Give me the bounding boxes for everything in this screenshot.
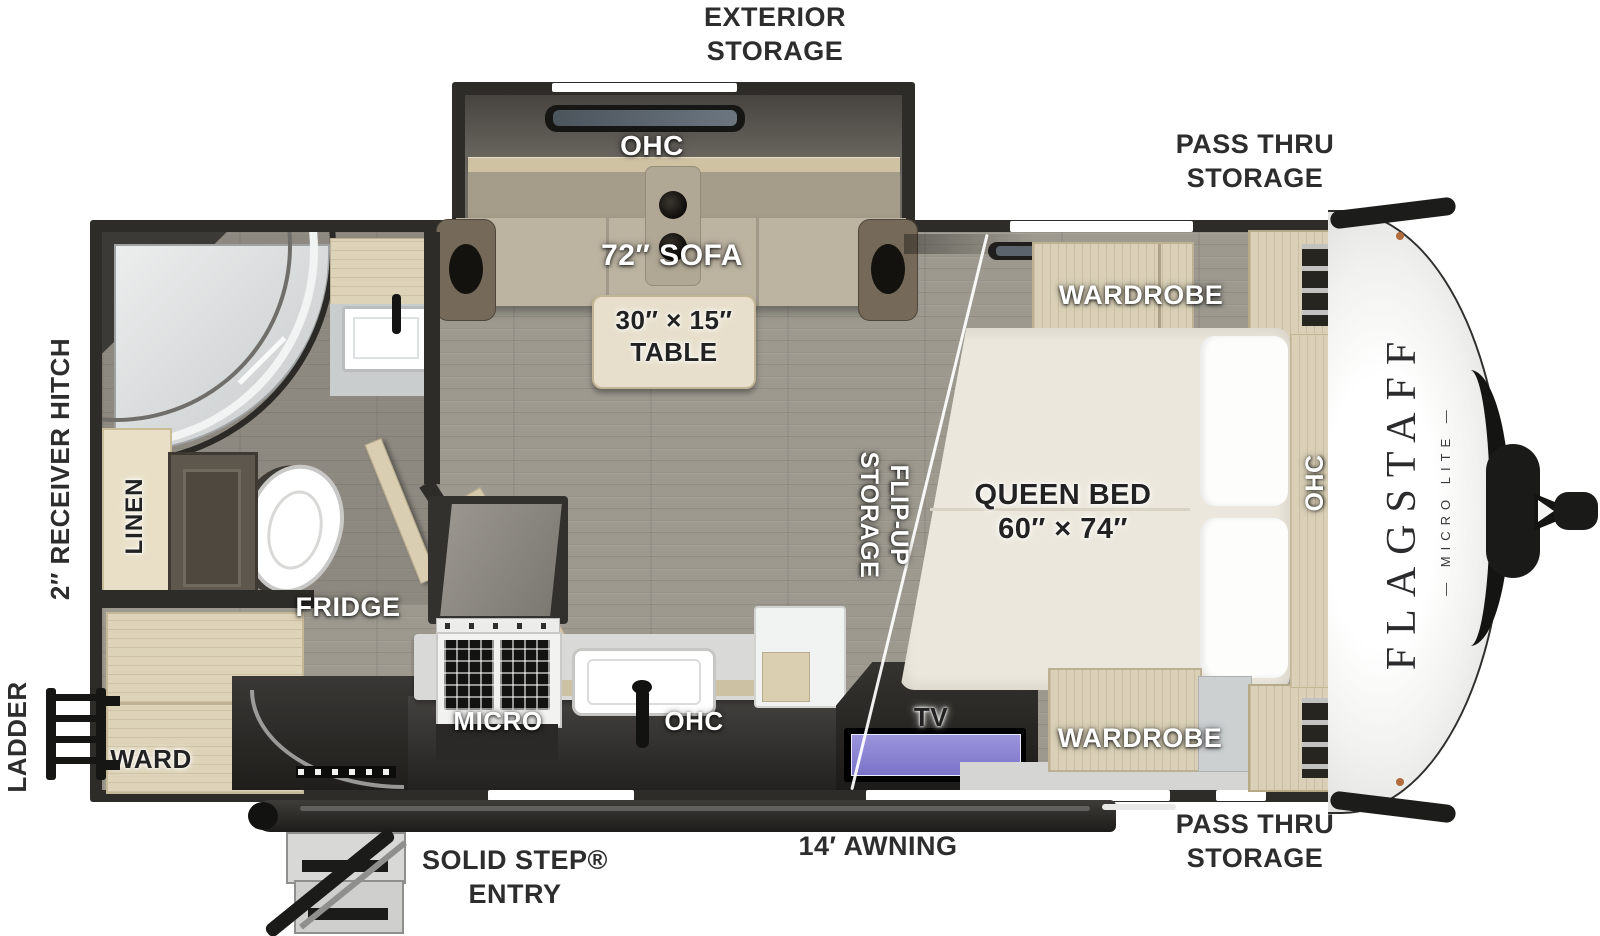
kitchen-ohc-label: OHC	[650, 704, 738, 738]
marker-light-icon	[1396, 778, 1404, 786]
kitchen-faucet-icon	[636, 688, 649, 748]
sofa-ohc-label: OHC	[610, 129, 694, 163]
exterior-storage-line2: STORAGE	[640, 34, 910, 68]
ladder-rungs	[54, 694, 98, 778]
stove-knobs	[445, 623, 551, 629]
pass-thru-top-line2: STORAGE	[1133, 161, 1377, 195]
tv-label: TV	[900, 700, 962, 734]
micro-label: MICRO	[438, 704, 558, 738]
kitchen-faucet-head	[632, 680, 652, 694]
pass-thru-bottom-label: PASS THRU STORAGE	[1133, 807, 1377, 875]
fridge	[428, 496, 568, 624]
awning-label: 14′ AWNING	[768, 829, 988, 863]
bath-dresser-panel	[183, 469, 241, 587]
entry-label-line2: ENTRY	[385, 877, 645, 911]
flip-up-wood-box	[762, 652, 810, 702]
pass-thru-top-label: PASS THRU STORAGE	[1133, 127, 1377, 195]
ladder-mount	[104, 696, 120, 706]
entry-step-strip	[296, 766, 396, 778]
dinette-table: 30″ × 15″ TABLE	[592, 295, 756, 389]
ladder-icon	[44, 686, 124, 782]
fridge-face	[440, 504, 562, 616]
fridge-label: FRIDGE	[288, 590, 408, 624]
cupholder-icon	[659, 191, 687, 219]
queen-bed-size-label: 60″ × 74″	[936, 512, 1190, 546]
stove-grate-right	[500, 640, 550, 710]
armrest-cup-icon	[449, 244, 483, 294]
wardrobe-bottom-cabinet	[1048, 668, 1202, 772]
receiver-hitch-label: 2″ RECEIVER HITCH	[43, 284, 77, 654]
flip-up-label-line2: STORAGE	[854, 425, 884, 605]
linen-label: LINEN	[118, 441, 152, 591]
bath-dresser	[168, 452, 258, 606]
table-label: TABLE	[594, 335, 754, 369]
pass-thru-top-line1: PASS THRU	[1133, 127, 1377, 161]
entry-label-line1: SOLID STEP®	[385, 843, 645, 877]
entry-step-dots	[298, 769, 394, 775]
armrest-cup-icon	[871, 244, 905, 294]
awning-bar-white-dash	[1102, 804, 1176, 810]
bath-sink-basin	[353, 317, 419, 359]
queen-bed-label: QUEEN BED	[928, 478, 1198, 512]
ladder-mount	[104, 760, 120, 770]
vanity-cabinet	[330, 238, 438, 306]
brand-logo: FLAGSTAFF	[1376, 285, 1428, 715]
awning-bar-endcap	[248, 802, 278, 830]
slideout-window	[552, 83, 737, 92]
slideout-vent	[545, 105, 745, 132]
bedroom-top-window	[1010, 221, 1193, 232]
ladder-label: LADDER	[0, 652, 34, 822]
brand-sub-logo: — MICRO LITE —	[1436, 360, 1456, 640]
pillow	[1200, 518, 1288, 678]
bathroom-bottom-wall	[102, 590, 314, 608]
propane-cover	[1486, 444, 1540, 578]
awning-bar	[254, 800, 1116, 832]
stove	[436, 618, 558, 760]
wardrobe-top-label: WARDROBE	[1012, 278, 1270, 312]
pass-thru-bottom-line2: STORAGE	[1133, 841, 1377, 875]
exterior-storage-line1: EXTERIOR	[640, 0, 910, 34]
bathroom-right-wall	[424, 232, 440, 484]
bath-sink	[342, 306, 432, 372]
marker-light-icon	[1396, 232, 1404, 240]
table-size-label: 30″ × 15″	[594, 305, 754, 335]
flip-up-label: FLIP-UP STORAGE	[854, 425, 914, 605]
pillow	[1200, 336, 1288, 506]
slideout-vent-glass	[553, 110, 737, 126]
awning-bar-highlight	[300, 806, 1090, 811]
flip-up-panel	[754, 606, 846, 708]
exterior-storage-label: EXTERIOR STORAGE	[640, 0, 910, 68]
flip-up-label-line1: FLIP-UP	[884, 425, 914, 605]
sofa-label: 72″ SOFA	[558, 239, 786, 273]
stove-grate-left	[444, 640, 494, 710]
entry-label: SOLID STEP® ENTRY	[385, 843, 645, 911]
wardrobe-bottom-label: WARDROBE	[1019, 721, 1261, 755]
bedroom-ohc-label: OHC	[1298, 437, 1332, 529]
bath-faucet-icon	[392, 294, 401, 334]
hitch-jack-handle	[1554, 492, 1598, 530]
floorplan-canvas: EXTERIOR STORAGE PASS THRU STORAGE PASS …	[0, 0, 1600, 936]
sofa-armrest-left	[436, 219, 496, 321]
